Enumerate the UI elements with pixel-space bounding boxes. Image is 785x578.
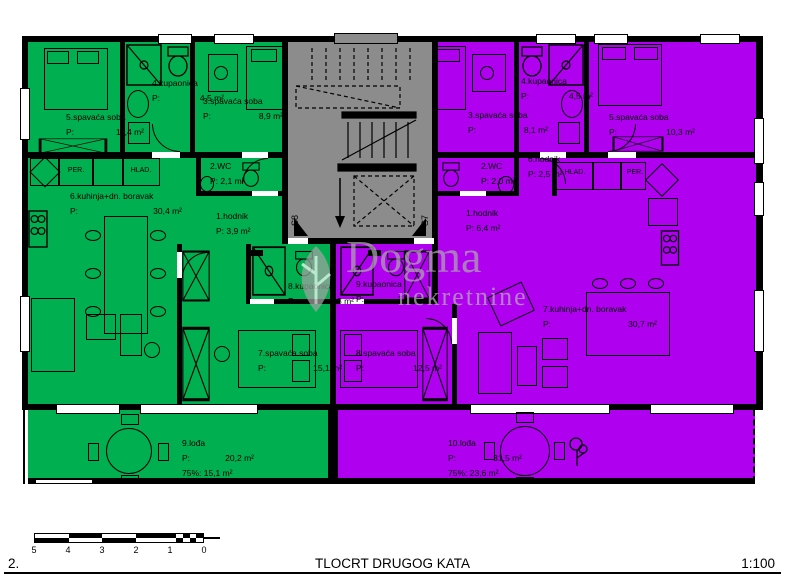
armchair	[542, 366, 568, 388]
scale-segment	[169, 538, 176, 542]
chair	[158, 443, 169, 461]
area-prefix: P:	[288, 296, 296, 307]
sofa	[31, 298, 75, 372]
scale-tick: 2	[130, 545, 142, 555]
area-value: 10,3 m²	[666, 127, 695, 138]
coffee-table	[517, 346, 537, 386]
window-opening	[594, 34, 628, 44]
chair	[554, 442, 565, 460]
chair	[150, 268, 166, 279]
room-name: 1.hodnik	[216, 211, 268, 222]
room-name: 3.spavaća soba	[203, 96, 283, 107]
area-value: 30,7 m²	[628, 319, 657, 330]
area-prefix: P:	[521, 91, 529, 102]
room-label-wc2-right: 2.WC P: 2,0 m²	[481, 161, 533, 187]
chair	[620, 278, 636, 289]
area-prefix: P:	[356, 294, 364, 305]
appliance-label-washer: PER.	[60, 167, 92, 174]
room-label-kitchen6-left: 6.kuhinja+dn. boravak P:30,4 m²	[70, 191, 182, 217]
wall	[338, 478, 755, 484]
room-label-bathroom8-left: 8.kupaonica P:3,8 m²	[288, 281, 354, 307]
room-name: 9.kupaonica	[356, 279, 422, 290]
chair	[592, 278, 608, 289]
wall	[328, 408, 338, 484]
area-prefix: P:	[66, 127, 74, 138]
window-opening	[754, 182, 764, 216]
wall	[514, 42, 519, 156]
armchair	[542, 338, 568, 360]
door-opening	[452, 318, 457, 344]
pillow	[634, 47, 658, 60]
room-name: 2.WC	[210, 161, 262, 172]
area-value: P: 2,0 m²	[481, 176, 515, 187]
wardrobe-icon	[182, 326, 210, 402]
chair	[144, 342, 160, 358]
wall	[756, 36, 763, 410]
room-name: 10.lođa	[448, 438, 522, 449]
room-label-hodnik6-right: 6.hodnik P: 2,5 m²	[528, 154, 580, 180]
area-value: 4,5 m²	[569, 91, 593, 102]
room-name: 7.kuhinja+dn. boravak	[543, 304, 657, 315]
window-opening	[536, 34, 576, 44]
window-opening	[754, 290, 764, 352]
washing-machine-icon	[558, 122, 580, 144]
scale-bar-line	[204, 537, 220, 539]
window-opening	[35, 479, 93, 484]
room-name: 8.spavaća soba	[356, 348, 442, 359]
area-value: 3,8 m²	[398, 294, 422, 305]
area-prefix: P:	[258, 363, 266, 374]
toilet-icon	[520, 46, 544, 78]
scale-segment	[196, 538, 203, 542]
wardrobe-icon	[182, 250, 210, 302]
scale-segment	[190, 538, 197, 542]
room-name: 3.spavaća soba	[468, 110, 548, 121]
area-prefix: P:	[609, 127, 617, 138]
round-table	[106, 428, 152, 474]
scale-segment	[176, 538, 183, 542]
scale-segment	[136, 538, 170, 542]
scale-tick: 5	[28, 545, 40, 555]
stair-door-label: S8	[290, 196, 300, 226]
staircase-icon	[286, 42, 434, 238]
area-value: P: 2,1 m²	[210, 176, 244, 187]
room-label-kitchen7-right: 7.kuhinja+dn. boravak P:30,7 m²	[543, 304, 657, 330]
sheet-title: TLOCRT DRUGOG KATA	[0, 556, 785, 571]
stove-icon	[660, 230, 680, 266]
room-name: 4.kupaonica	[152, 78, 224, 89]
room-label-wc2-left: 2.WC P: 2,1 m²	[210, 161, 262, 187]
area-prefix: P:	[543, 319, 551, 330]
room-label-bedroom3-left: 3.spavaća soba P:8,9 m²	[203, 96, 283, 122]
chair	[648, 278, 664, 289]
room-label-hodnik1-right: 1.hodnik P: 6,4 m²	[466, 208, 518, 234]
toilet-icon	[440, 162, 462, 188]
scale-tick: 3	[96, 545, 108, 555]
area-75: 75%: 23,6 m²	[448, 468, 522, 479]
appliance-label-washer: PER.	[622, 169, 648, 176]
sofa	[478, 332, 512, 394]
toilet-icon	[166, 46, 190, 78]
stair-door-label: S7	[420, 196, 430, 226]
area-prefix: P:	[152, 93, 160, 104]
scale-segment	[102, 538, 136, 542]
area-value: 31,5 m²	[493, 453, 522, 464]
room-name: 8.kupaonica	[288, 281, 354, 292]
room-name: 5.spavaća soba	[609, 112, 695, 123]
scale-segment	[69, 538, 103, 542]
window-opening	[214, 34, 254, 44]
window-opening	[650, 404, 734, 414]
title-underline	[4, 572, 781, 574]
door-opening	[608, 152, 636, 158]
area-value: 15,1 m²	[313, 363, 342, 374]
toilet-icon	[294, 250, 314, 278]
appliance-label-fridge: HLAD.	[558, 169, 592, 176]
room-label-loggia10-right: 10.lođa P:31,5 m² 75%: 23,6 m²	[448, 438, 522, 479]
area-value: P: 3,9 m²	[216, 226, 250, 237]
area-value: 8,9 m²	[259, 111, 283, 122]
area-value: 11,4 m²	[116, 127, 144, 138]
sheet-scale: 1:100	[741, 556, 775, 571]
chair	[480, 66, 494, 80]
scale-bar: 5 4 3 2 1 0	[34, 531, 214, 559]
floor-plan-sheet: S8 S7	[0, 0, 785, 578]
pillow	[602, 47, 626, 60]
room-label-hodnik1-left: 1.hodnik P: 3,9 m²	[216, 211, 268, 237]
wardrobe-icon	[38, 138, 108, 154]
shower-icon	[252, 246, 286, 296]
pillow	[251, 49, 277, 62]
area-value: 8,1 m²	[524, 125, 548, 136]
area-prefix: P:	[448, 453, 456, 464]
room-label-bathroom4-right: 4.kupaonica P:4,5 m²	[521, 76, 593, 102]
window-opening	[754, 118, 764, 164]
scale-bar-graphic	[34, 533, 204, 543]
area-prefix: P:	[203, 111, 211, 122]
scale-segment	[35, 538, 69, 542]
room-name: 5.spavaća soba	[66, 112, 144, 123]
area-value: 30,4 m²	[153, 206, 182, 217]
chair	[121, 475, 139, 483]
room-name: 7.spavaća soba	[258, 348, 342, 359]
scale-tick: 0	[198, 545, 210, 555]
room-name: 2.WC	[481, 161, 533, 172]
pillow	[47, 51, 69, 64]
chair	[214, 346, 230, 362]
chair	[88, 443, 99, 461]
wall	[330, 244, 336, 408]
door-opening	[288, 238, 308, 244]
window-opening	[140, 404, 258, 414]
area-prefix: P:	[182, 453, 190, 464]
room-label-bedroom7-left: 7.spavaća soba P:15,1 m²	[258, 348, 342, 374]
scale-segment	[183, 538, 190, 542]
wardrobe-icon	[612, 136, 664, 152]
loggia-left-area	[28, 408, 332, 484]
chair	[516, 412, 534, 423]
door-opening	[250, 299, 274, 304]
wall	[434, 152, 763, 158]
chair	[85, 230, 101, 241]
window-opening	[700, 34, 740, 44]
window-opening	[158, 34, 192, 44]
room-name: 1.hodnik	[466, 208, 518, 219]
armchair	[86, 314, 116, 340]
room-label-bedroom8-right: 8.spavaća soba P:12,5 m²	[356, 348, 442, 374]
toilet-icon	[386, 250, 406, 278]
area-prefix: P:	[356, 363, 364, 374]
stove-icon	[28, 210, 48, 248]
door-opening	[414, 238, 434, 244]
window-opening	[56, 404, 120, 414]
area-value: P: 6,4 m²	[466, 223, 500, 234]
kitchen-counter	[648, 198, 678, 226]
room-label-bedroom5-right: 5.spavaća soba P:10,3 m²	[609, 112, 695, 138]
window-opening	[20, 88, 30, 140]
room-name: 6.hodnik	[528, 154, 580, 165]
room-name: 9.lođa	[182, 438, 254, 449]
railing	[23, 408, 25, 484]
room-name: 6.kuhinja+dn. boravak	[70, 191, 182, 202]
room-name: 4.kupaonica	[521, 76, 593, 87]
coffee-table	[120, 314, 142, 356]
chair	[121, 414, 139, 425]
scale-bar-row	[35, 538, 203, 542]
room-label-bathroom9-right: 9.kupaonica P:3,8 m²	[356, 279, 422, 305]
door-opening	[460, 191, 486, 196]
area-value: 20,2 m²	[225, 453, 254, 464]
appliance-label-fridge: HLAD.	[124, 167, 158, 174]
pillow	[77, 51, 99, 64]
area-value: 12,5 m²	[413, 363, 442, 374]
wall	[432, 244, 438, 304]
area-75: 75%: 15,1 m²	[182, 468, 254, 479]
door-opening	[252, 191, 278, 196]
area-value: 3,8 m²	[330, 296, 354, 307]
area-prefix: P:	[468, 125, 476, 136]
room-label-bedroom3-right: 3.spavaća soba P:8,1 m²	[468, 110, 548, 136]
scale-tick: 1	[164, 545, 176, 555]
window-opening	[470, 404, 610, 414]
scale-tick: 4	[62, 545, 74, 555]
door-opening	[242, 152, 268, 158]
window-opening	[20, 296, 30, 352]
chair	[85, 268, 101, 279]
chair	[150, 306, 166, 317]
room-label-bedroom5-left: 5.spavaća soba P:11,4 m²	[66, 112, 144, 138]
railing	[753, 410, 755, 482]
plant-icon	[566, 436, 590, 470]
chair	[150, 230, 166, 241]
pillow	[436, 49, 460, 62]
wall	[120, 42, 125, 156]
room-label-loggia9-left: 9.lođa P:20,2 m² 75%: 15,1 m²	[182, 438, 254, 479]
area-prefix: P:	[70, 206, 78, 217]
